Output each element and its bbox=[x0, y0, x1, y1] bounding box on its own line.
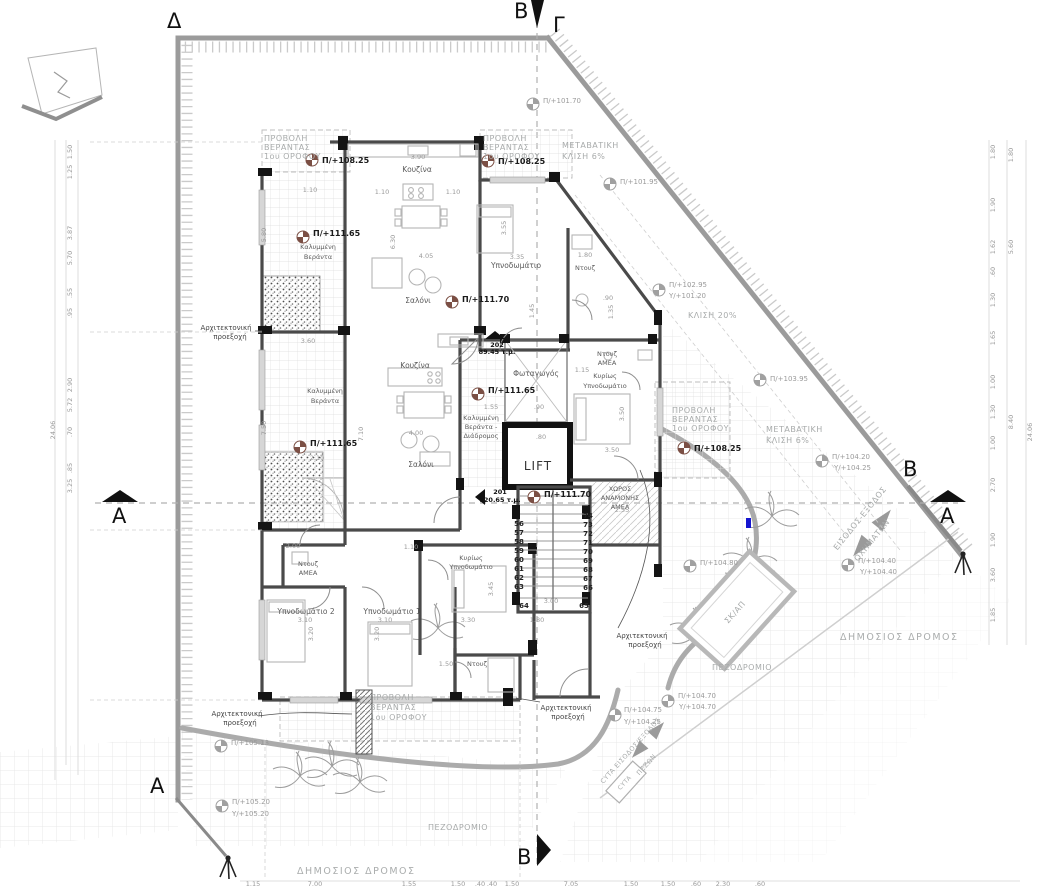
dim-label: 1.55 bbox=[402, 880, 416, 888]
dim-label: 8.40 bbox=[1007, 415, 1015, 429]
dim-label: 1.30 bbox=[989, 293, 997, 307]
level-label: Π/+108.25 bbox=[322, 156, 370, 165]
level-label: Π/+105.18 bbox=[231, 739, 269, 747]
room-label-veranda: Βεράντα bbox=[304, 253, 332, 261]
level-label: Π/+111.70 bbox=[462, 295, 510, 304]
zone-label-slope: ΚΛΙΣΗ 6% bbox=[766, 436, 809, 445]
zone-label-public-road: ΔΗΜΟΣΙΟΣ ΔΡΟΜΟΣ bbox=[840, 632, 959, 643]
level-label: Π/+103.95 bbox=[770, 375, 808, 383]
dim-label: 1.30 bbox=[989, 405, 997, 419]
annotation-arch-projection: Αρχιτεκτονική bbox=[616, 632, 667, 640]
dim-label: 1.45 bbox=[528, 304, 536, 318]
zone-label-sidewalk: ΠΕΖΟΔΡΟΜΙΟ bbox=[712, 663, 772, 672]
dim-label: 1.80 bbox=[989, 145, 997, 159]
stair-number: 72 bbox=[583, 530, 593, 538]
zone-label-slope: ΜΕΤΑΒΑΤΙΚΗ bbox=[766, 425, 823, 434]
section-arrow-icon bbox=[531, 0, 544, 28]
section-letter-b: Β bbox=[514, 0, 528, 23]
dim-label: 1.55 bbox=[484, 403, 498, 411]
dim-label: 1.10 bbox=[303, 186, 317, 194]
section-letter-b: Β bbox=[517, 845, 531, 869]
room-label-shower: Ντουζ bbox=[575, 264, 596, 272]
dim-label: 7.00 bbox=[308, 880, 322, 888]
apartment-area: 120.65 τ.μ. bbox=[479, 496, 520, 504]
floor-plan-canvas: Π/+108.25 Π/+108.25 Π/+108.25 Π/+111.65 … bbox=[0, 0, 1061, 889]
projection-label: ΠΡΟΒΟΛΗ bbox=[672, 406, 716, 415]
level-label: Υ/+104.70 bbox=[678, 703, 716, 711]
stair-number: 69 bbox=[583, 557, 593, 565]
dim-label: 1.90 bbox=[989, 533, 997, 547]
stair-number: 65 bbox=[579, 602, 589, 610]
dim-label: 2.30 bbox=[716, 880, 730, 888]
zone-label-public-road: ΔΗΜΟΣΙΟΣ ΔΡΟΜΟΣ bbox=[297, 866, 416, 877]
level-label: Π/+111.70 bbox=[544, 490, 592, 499]
dim-label: .70 bbox=[66, 427, 74, 437]
zone-label-slope: ΜΕΤΑΒΑΤΙΚΗ bbox=[562, 141, 619, 150]
apartment-number: 201 bbox=[493, 488, 507, 496]
dim-label: 3.10 bbox=[298, 616, 312, 624]
projection-label: ΒΕΡΑΝΤΑΣ bbox=[483, 143, 529, 152]
dim-label: 4.00 bbox=[409, 429, 423, 437]
level-label: Π/+104.70 bbox=[678, 692, 716, 700]
key-plan bbox=[22, 48, 102, 119]
stair-number: 63 bbox=[514, 583, 524, 591]
annotation-arch-projection: προεξοχή bbox=[551, 713, 584, 721]
projection-label: 1ου ΟΡΟΦΟΥ bbox=[370, 713, 427, 722]
dim-label: 3.60 bbox=[301, 337, 315, 345]
dim-label: 2.55 bbox=[615, 506, 629, 514]
projection-label: ΠΡΟΒΟΛΗ bbox=[264, 134, 308, 143]
dim-label: 3.20 bbox=[373, 627, 381, 641]
section-letter-a: Α bbox=[112, 504, 127, 528]
dim-label: .60 bbox=[691, 880, 701, 888]
room-label-master: Υπνοδωμάτιο bbox=[582, 382, 626, 390]
stair-number: 56 bbox=[514, 520, 524, 528]
dim-label: 3.10 bbox=[378, 616, 392, 624]
room-label-bedroom1: Υπνοδωμάτιο 1 bbox=[362, 607, 420, 616]
stair-number: 58 bbox=[514, 538, 524, 546]
dim-label: 2.10 bbox=[310, 454, 324, 462]
projection-label: 1ου ΟΡΟΦΟΥ bbox=[483, 152, 540, 161]
level-label: Π/+111.65 bbox=[313, 229, 361, 238]
dim-label: 3.60 bbox=[989, 568, 997, 582]
room-label-corridor: Καλυμμένη bbox=[463, 414, 499, 422]
stair-number: 68 bbox=[583, 566, 593, 574]
section-letter-a: Α bbox=[940, 504, 955, 528]
room-label-corridor: Διάδρομος bbox=[464, 432, 499, 440]
stair-number: 61 bbox=[514, 565, 524, 573]
dim-label: 5.72 bbox=[66, 398, 74, 412]
dim-label: .55 bbox=[66, 288, 74, 298]
room-label-living: Σαλόνι bbox=[408, 460, 434, 469]
dim-label: .60 bbox=[989, 267, 997, 277]
room-label-kitchen: Κουζίνα bbox=[402, 165, 432, 174]
dim-label: 7.10 bbox=[357, 427, 365, 441]
dim-label: 1.00 bbox=[989, 375, 997, 389]
room-label-master: Κυρίως bbox=[459, 554, 483, 562]
stair-number: 57 bbox=[514, 529, 524, 537]
room-label-corridor: Βεράντα - bbox=[465, 423, 498, 431]
dim-label: .40 bbox=[475, 880, 485, 888]
dim-label: 7.05 bbox=[564, 880, 578, 888]
level-label: Π/+101.70 bbox=[543, 97, 581, 105]
room-label-living: Σαλόνι bbox=[405, 296, 431, 305]
level-label: Π/+102.95 bbox=[669, 281, 707, 289]
room-label-lightwell: Φωταγωγός bbox=[513, 369, 559, 378]
level-label: Π/+104.75 bbox=[624, 706, 662, 714]
dim-label: .80 bbox=[536, 433, 546, 441]
dim-label: 1.65 bbox=[989, 331, 997, 345]
dim-label: .60 bbox=[755, 880, 765, 888]
level-label: Υ/+104.25 bbox=[833, 464, 871, 472]
level-label: Π/+104.80 bbox=[700, 559, 738, 567]
section-arrow-icon bbox=[930, 490, 966, 502]
stair-number: 71 bbox=[583, 539, 593, 547]
room-label-master: Υπνοδωμάτιο bbox=[448, 563, 492, 571]
dim-label: 6.30 bbox=[389, 235, 397, 249]
zone-label-slope: ΚΛΙΣΗ 6% bbox=[562, 152, 605, 161]
dim-label: 1.15 bbox=[575, 366, 589, 374]
dim-label: 4.05 bbox=[419, 252, 433, 260]
dim-label: 3.50 bbox=[618, 407, 626, 421]
room-label-shower-amea: ΑΜΕΑ bbox=[299, 569, 318, 577]
dim-label: 3.20 bbox=[307, 627, 315, 641]
floor-plan-drawing: Π/+108.25 Π/+108.25 Π/+108.25 Π/+111.65 … bbox=[0, 0, 1061, 889]
dim-label: 2.00 bbox=[286, 542, 300, 550]
annotation-arch-projection: προεξοχή bbox=[223, 719, 256, 727]
dim-label: 1.35 bbox=[607, 305, 615, 319]
dim-label: 1.90 bbox=[989, 198, 997, 212]
projection-label: 1ου ΟΡΟΦΟΥ bbox=[264, 152, 321, 161]
room-label-veranda: Καλυμμένη bbox=[300, 243, 336, 251]
room-label-kitchen: Κουζίνα bbox=[400, 361, 430, 370]
stair-number: 60 bbox=[514, 556, 524, 564]
dim-label: 1.50 bbox=[451, 880, 465, 888]
stair-number: 66 bbox=[583, 584, 593, 592]
section-letter-g: Γ bbox=[553, 13, 565, 37]
stair-number: 64 bbox=[519, 602, 529, 610]
dim-label: 1.80 bbox=[1007, 148, 1015, 162]
zone-label-sidewalk: ΠΕΖΟΔΡΟΜΙΟ bbox=[428, 823, 488, 832]
dim-label: 5.60 bbox=[1007, 240, 1015, 254]
dim-label: 2.90 bbox=[66, 378, 74, 392]
zone-label-slope20: ΚΛΙΣΗ 20% bbox=[688, 311, 737, 320]
level-label: Π/+111.65 bbox=[488, 386, 536, 395]
dim-label: 3.30 bbox=[461, 616, 475, 624]
section-letter-a: Α bbox=[150, 774, 165, 798]
dim-label: 1.10 bbox=[375, 188, 389, 196]
room-label-bedroom: Υπνοδωμάτιο bbox=[490, 261, 542, 270]
section-letter-d: Δ bbox=[167, 9, 182, 33]
level-label: Π/+101.95 bbox=[620, 178, 658, 186]
dim-label: .40 bbox=[487, 880, 497, 888]
stair-number: 67 bbox=[583, 575, 593, 583]
dim-label: 24.06 bbox=[49, 421, 57, 440]
dim-label: 1.85 bbox=[989, 608, 997, 622]
projection-label: ΒΕΡΑΝΤΑΣ bbox=[370, 703, 416, 712]
dim-label: 3.00 bbox=[544, 597, 558, 605]
dim-label: 5.70 bbox=[66, 251, 74, 265]
dim-label: 1.80 bbox=[578, 251, 592, 259]
dim-label: 24.06 bbox=[1026, 423, 1034, 442]
room-label-lift: LIFT bbox=[524, 459, 552, 473]
projection-label: ΠΡΟΒΟΛΗ bbox=[370, 693, 414, 702]
dim-label: 5.80 bbox=[260, 228, 268, 242]
dim-label: 1.00 bbox=[989, 436, 997, 450]
projection-label: ΠΡΟΒΟΛΗ bbox=[483, 134, 527, 143]
section-arrow-icon bbox=[102, 490, 138, 502]
level-label: Π/+111.65 bbox=[310, 439, 358, 448]
level-label: Υ/+105.20 bbox=[231, 810, 269, 818]
annotation-arch-projection: προεξοχή bbox=[628, 641, 661, 649]
dim-label: 1.50 bbox=[66, 145, 74, 159]
room-label-waiting: ΧΩΡΟΣ bbox=[609, 485, 632, 493]
dim-label: 2.70 bbox=[989, 478, 997, 492]
projection-label: ΒΕΡΑΝΤΑΣ bbox=[264, 143, 310, 152]
dim-label: 1.25 bbox=[66, 165, 74, 179]
dim-label: 1.15 bbox=[246, 880, 260, 888]
dim-label: 1.50 bbox=[624, 880, 638, 888]
dim-label: 3.45 bbox=[487, 582, 495, 596]
dim-label: 3.55 bbox=[500, 221, 508, 235]
dim-label: 1.10 bbox=[446, 188, 460, 196]
stairs-flight bbox=[520, 490, 588, 610]
dim-label: .90 bbox=[534, 403, 544, 411]
room-label-waiting: ΑΝΑΜΟΝΗΣ bbox=[601, 494, 639, 502]
dim-label: 1.62 bbox=[989, 240, 997, 254]
apartment-area: 89.45 τ.μ. bbox=[479, 348, 516, 356]
stair-number: 59 bbox=[514, 547, 524, 555]
room-label-shower-amea: ΑΜΕΑ bbox=[598, 359, 617, 367]
dim-label: 3.35 bbox=[510, 253, 524, 261]
dim-label: 3.87 bbox=[66, 226, 74, 240]
projection-label: 1ου ΟΡΟΦΟΥ bbox=[672, 424, 729, 433]
projection-label: ΒΕΡΑΝΤΑΣ bbox=[672, 415, 718, 424]
stair-number: 74 bbox=[583, 512, 593, 520]
dim-label: .90 bbox=[603, 294, 613, 302]
annotation-arch-projection: Αρχιτεκτονική bbox=[540, 704, 591, 712]
dim-label: 3.25 bbox=[66, 479, 74, 493]
stair-number: 70 bbox=[583, 548, 593, 556]
annotation-arch-projection: Αρχιτεκτονική bbox=[200, 324, 251, 332]
stair-number: 62 bbox=[514, 574, 524, 582]
dim-label: 3.90 bbox=[411, 153, 425, 161]
level-label: Π/+104.20 bbox=[832, 453, 870, 461]
level-label: Π/+104.40 bbox=[858, 557, 896, 565]
dim-label: 1.50 bbox=[505, 880, 519, 888]
dim-label: 3.50 bbox=[605, 446, 619, 454]
level-label: Π/+105.20 bbox=[232, 798, 270, 806]
apartment-marker-201: 201 120.65 τ.μ. bbox=[475, 488, 521, 505]
stair-number: 73 bbox=[583, 521, 593, 529]
annotation-arch-projection: Αρχιτεκτονική bbox=[211, 710, 262, 718]
room-label-veranda: Βεράντα bbox=[311, 397, 339, 405]
room-label-shower: Ντουζ bbox=[467, 660, 488, 668]
section-arrow-icon bbox=[537, 834, 551, 866]
utility-marker bbox=[746, 518, 751, 528]
surveyor-station-icon bbox=[220, 855, 236, 879]
annotation-arch-projection: προεξοχή bbox=[213, 333, 246, 341]
level-label: Υ/+104.40 bbox=[859, 568, 897, 576]
room-label-shower-amea: Ντουζ bbox=[298, 560, 319, 568]
room-label-veranda: Καλυμμένη bbox=[307, 387, 343, 395]
dim-label: 1.80 bbox=[530, 616, 544, 624]
dim-label: .85 bbox=[66, 463, 74, 473]
room-label-bedroom2: Υπνοδωμάτιο 2 bbox=[276, 607, 334, 616]
dim-label: 1.50 bbox=[661, 880, 675, 888]
section-letter-b: Β bbox=[903, 457, 917, 481]
level-label: Υ/+101.20 bbox=[668, 292, 706, 300]
room-label-shower-amea: Ντουζ bbox=[597, 350, 618, 358]
dim-label: 1.50 bbox=[439, 660, 453, 668]
dim-label: 1.10 bbox=[404, 543, 418, 551]
room-label-master: Κυρίως bbox=[593, 372, 617, 380]
level-label: Π/+108.25 bbox=[694, 444, 742, 453]
dim-label: .95 bbox=[66, 308, 74, 318]
dim-label: 7.50 bbox=[260, 421, 268, 435]
